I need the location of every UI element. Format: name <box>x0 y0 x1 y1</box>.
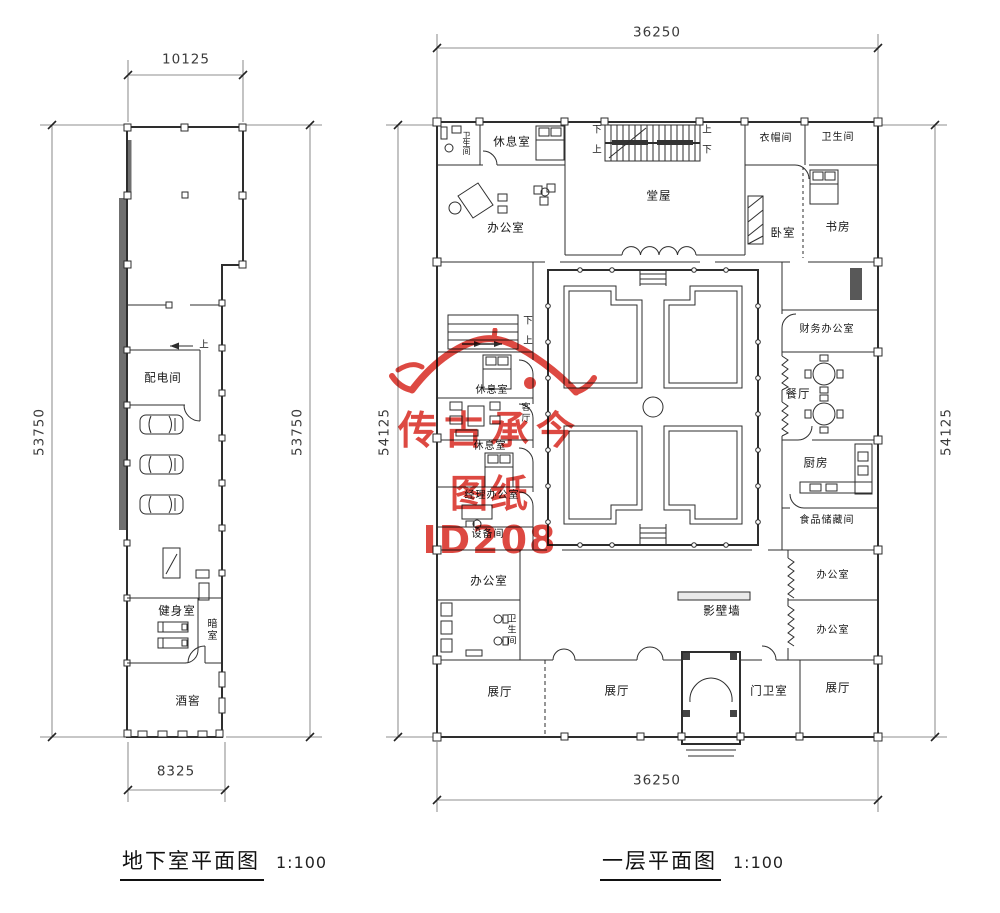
corridor-down-note: 下 <box>523 316 533 326</box>
car-icon <box>140 495 183 514</box>
stair-up-note: 上 <box>592 145 602 155</box>
basement-dim-left: 53750 <box>33 408 47 456</box>
watermark-roof-icon <box>382 328 598 396</box>
room-label-dining-room: 餐厅 <box>786 388 811 400</box>
staircase <box>605 125 700 161</box>
room-label-bedroom: 卧室 <box>771 227 796 239</box>
watermark-text-line1: 传古承今 <box>382 400 598 456</box>
treadmill-icon <box>158 622 188 648</box>
room-label-exhibit-center: 展厅 <box>605 685 630 697</box>
room-label-main-hall: 堂屋 <box>647 190 672 202</box>
room-label-office-right-1: 办公室 <box>817 571 850 581</box>
basement-dim-top: 10125 <box>162 53 210 67</box>
room-label-lounge-top: 休息室 <box>493 136 531 148</box>
watermark-text-line2: 图纸 ID208 <box>382 463 598 562</box>
car-icon <box>140 415 183 434</box>
first-floor-dim-right: 54125 <box>940 408 954 456</box>
room-label-power-room: 配电间 <box>144 372 182 384</box>
room-label-bath-bottom-left: 卫生间 <box>506 614 515 647</box>
basement-plan-scale: 1:100 <box>276 853 327 872</box>
first-floor-plan-title-text: 一层平面图 <box>600 845 721 881</box>
first-floor-dim-bottom: 36250 <box>633 774 681 788</box>
room-label-exhibit-right: 展厅 <box>826 682 851 694</box>
room-label-cloakroom: 衣帽间 <box>760 134 793 144</box>
room-label-office-right-2: 办公室 <box>817 626 850 636</box>
basement-up-note: 上 <box>199 340 209 350</box>
first-floor-plan-scale: 1:100 <box>733 853 784 872</box>
room-label-darkroom: 暗室 <box>205 618 215 642</box>
watermark: 传古承今 图纸 ID208 <box>382 328 598 562</box>
room-label-office-bottom-left: 办公室 <box>470 575 508 587</box>
room-label-kitchen: 厨房 <box>804 457 829 469</box>
basement-dim-right: 53750 <box>291 408 305 456</box>
room-label-pantry: 食品储藏间 <box>800 516 855 526</box>
gatehouse <box>682 652 740 756</box>
basement-dim-bottom: 8325 <box>157 765 195 779</box>
stair-down-note: 下 <box>702 145 712 155</box>
room-label-gym: 健身室 <box>158 605 196 617</box>
screen-wall-symbol <box>678 592 750 600</box>
dining-table-icon <box>805 355 843 433</box>
first-floor-dim-top: 36250 <box>633 26 681 40</box>
basement-plan-title: 地下室平面图 1:100 <box>120 845 327 881</box>
room-label-wine-cellar: 酒窖 <box>176 695 201 707</box>
first-floor-plan-title: 一层平面图 1:100 <box>600 845 784 881</box>
room-label-guard-room: 门卫室 <box>750 685 788 697</box>
basement-plan-title-text: 地下室平面图 <box>120 845 264 881</box>
bed-icon <box>536 126 564 160</box>
room-label-study: 书房 <box>826 221 851 233</box>
room-label-exhibit-left: 展厅 <box>488 686 513 698</box>
stair-down-note: 下 <box>592 125 602 135</box>
stair-up-note: 上 <box>702 125 712 135</box>
room-label-bath-top-left: 卫生间 <box>462 131 470 155</box>
room-label-finance-office: 财务办公室 <box>800 325 855 335</box>
basement-plan-drawing <box>119 124 246 737</box>
architectural-drawing-sheet: 10125 53750 53750 8325 上 配电间 健身室 暗室 酒窖 3… <box>0 0 1000 913</box>
bed-icon <box>810 170 838 204</box>
room-label-bath-top-right: 卫生间 <box>822 133 855 143</box>
car-icon <box>140 455 183 474</box>
room-label-office-top-left: 办公室 <box>487 222 525 234</box>
room-label-screen-wall: 影壁墙 <box>703 605 741 617</box>
courtyard-well <box>643 397 663 417</box>
